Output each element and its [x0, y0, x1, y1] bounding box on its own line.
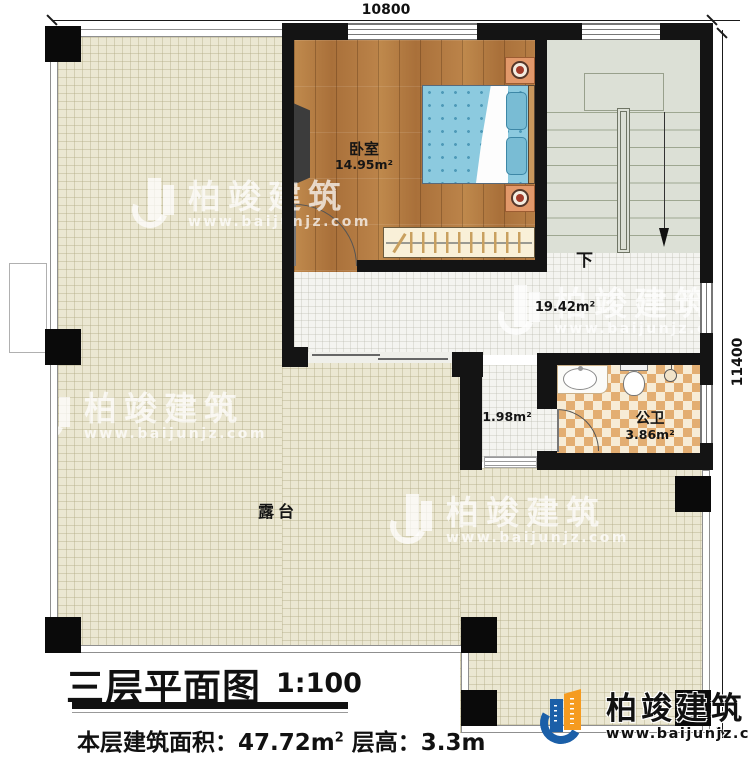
floor-stats: 本层建筑面积：47.72m2 层高：3.3m [77, 723, 485, 757]
column [45, 329, 81, 365]
column [45, 26, 81, 62]
sink-icon [563, 368, 597, 390]
bathroom-door-leaf [557, 409, 559, 452]
title-underline-thick [72, 702, 348, 709]
sliding-door [308, 352, 452, 363]
pillow-icon [506, 137, 527, 175]
hall-area-label: 19.42m² [528, 301, 602, 316]
nightstand-icon [505, 57, 535, 84]
wall-bathroom-west-upper [537, 353, 557, 409]
stair-landing-outline [584, 73, 664, 111]
lamp-icon [511, 189, 529, 207]
floor-area-text: 本层建筑面积：47.72m [77, 730, 335, 756]
dimension-line-top [52, 20, 740, 21]
wall-bathroom-north [537, 353, 713, 365]
wall-bedroom-south [357, 260, 547, 272]
exterior-ledge-outline [9, 263, 47, 353]
wardrobe-hangers [410, 232, 528, 253]
bathroom-name: 公卫 [608, 411, 692, 428]
tv-icon [293, 103, 310, 185]
parapet-top [50, 29, 284, 37]
parapet-bottom-upper [50, 645, 469, 653]
terrace-label: 露台 [258, 503, 298, 521]
brand-logo-icon [540, 686, 598, 748]
wall-bedroom-stair [535, 33, 547, 272]
floor-plan: 柏竣建筑 www.baijunjz.com 柏竣建筑 www.baijunjz.… [0, 0, 750, 758]
brand-name: 柏竣建筑 [606, 692, 750, 726]
title-underline-thin [72, 712, 348, 713]
bed-headboard [528, 85, 535, 184]
stair-direction-line [664, 112, 665, 228]
bedroom-name: 卧室 [312, 141, 416, 158]
wall-east-3 [700, 443, 713, 470]
brand-logo: 柏竣建筑 www.baijunjz.com [540, 686, 750, 748]
bedroom-area: 14.95m² [312, 158, 416, 172]
bedroom-door-leaf [294, 204, 296, 266]
stair-down-label: 下 [576, 252, 593, 272]
corridor-area-label: 1.98m² [475, 410, 539, 424]
nightstand-icon [505, 185, 535, 212]
pillow-icon [506, 92, 527, 130]
bathroom-window [700, 385, 713, 443]
terrace-floor-center [282, 360, 466, 653]
stair-rail [617, 108, 630, 253]
bathroom-area: 3.86m² [608, 428, 692, 442]
column [461, 617, 497, 653]
drawing-scale: 1:100 [276, 668, 362, 699]
hall-window [700, 283, 713, 333]
floor-height-text: 层高：3.3m [344, 730, 486, 756]
wall-west [282, 23, 294, 367]
terrace-floor-left [50, 29, 282, 653]
wall-north-2 [477, 23, 582, 40]
stair-window [582, 23, 660, 40]
wall-east-1 [700, 23, 713, 283]
lamp-icon [511, 61, 529, 79]
floor-area-sup: 2 [335, 730, 344, 745]
wall-east-2 [700, 333, 713, 385]
bedroom-label: 卧室 14.95m² [312, 141, 416, 173]
dimension-right-value: 11400 [730, 327, 746, 397]
dimension-top-value: 10800 [350, 2, 422, 18]
column [45, 617, 81, 653]
sink-faucet [578, 366, 583, 371]
column [461, 690, 497, 726]
toilet-icon [623, 371, 645, 396]
stair-down-arrow-icon [659, 228, 669, 247]
bath-door-gap-floor [537, 407, 557, 451]
wall-hall-south-stub [282, 347, 308, 367]
column [675, 476, 711, 512]
corridor-terrace-door [484, 456, 537, 468]
bathroom-label: 公卫 3.86m² [608, 411, 692, 442]
shower-icon [664, 369, 677, 382]
dimension-line-right [722, 30, 723, 738]
bedroom-window [348, 23, 477, 40]
brand-url: www.baijunjz.com [606, 726, 750, 742]
wardrobe-icon [383, 227, 535, 258]
wall-bathroom-south [537, 453, 713, 470]
